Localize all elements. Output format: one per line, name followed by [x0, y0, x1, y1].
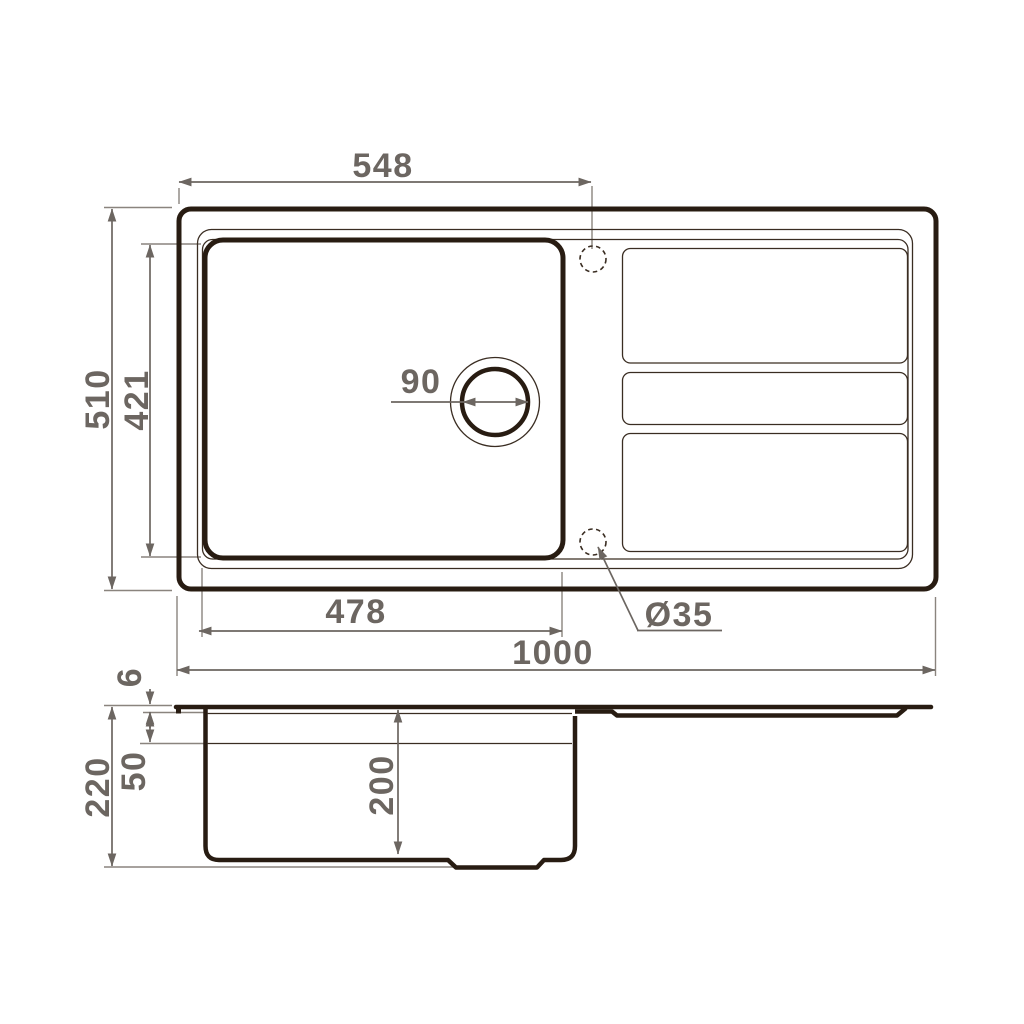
sink-technical-drawing: 548 510 421 90 478 1000	[0, 0, 1024, 1024]
side-view: 6 50 220 200	[79, 667, 931, 868]
dimension-90: 90	[391, 363, 528, 402]
dimension-label-510: 510	[79, 368, 117, 429]
dimension-1000: 1000	[177, 634, 935, 672]
dimension-label-200: 200	[363, 754, 401, 815]
dimension-label-421: 421	[118, 369, 156, 430]
dimension-label-90: 90	[401, 363, 442, 401]
dimension-label-478: 478	[325, 593, 386, 631]
dimension-421: 421	[118, 245, 156, 556]
drainboard-groove-middle	[623, 373, 908, 425]
dimension-220: 220	[79, 707, 117, 866]
dimension-label-6: 6	[111, 667, 149, 687]
dimension-6: 6	[111, 667, 150, 728]
side-view-extension-lines	[104, 706, 455, 868]
dimension-510: 510	[79, 209, 117, 589]
technical-drawing-page: 548 510 421 90 478 1000	[0, 0, 1024, 1024]
drainboard-groove-top	[623, 249, 908, 364]
dimension-50: 50	[115, 714, 153, 791]
sink-bowl	[205, 240, 563, 558]
dimension-label-o35: Ø35	[645, 596, 714, 634]
dimension-label-220: 220	[79, 756, 117, 817]
tap-hole-bottom	[580, 529, 606, 555]
dimension-label-548: 548	[352, 147, 413, 185]
top-view: 548 510 421 90 478 1000	[79, 147, 936, 676]
dimension-200: 200	[363, 710, 401, 854]
top-view-extension-lines	[104, 186, 936, 676]
dimension-478: 478	[199, 593, 562, 631]
sink-rim-outer-line	[198, 230, 913, 569]
sink-rim-inner-line	[203, 240, 909, 560]
drainboard-groove-bottom	[623, 434, 908, 552]
drainboard-grooves	[623, 249, 908, 552]
dimension-label-1000: 1000	[512, 634, 594, 672]
dimension-label-50: 50	[115, 751, 153, 792]
dimension-548: 548	[179, 147, 591, 185]
sink-outer-edge	[179, 209, 936, 589]
tap-hole-top	[580, 246, 606, 272]
